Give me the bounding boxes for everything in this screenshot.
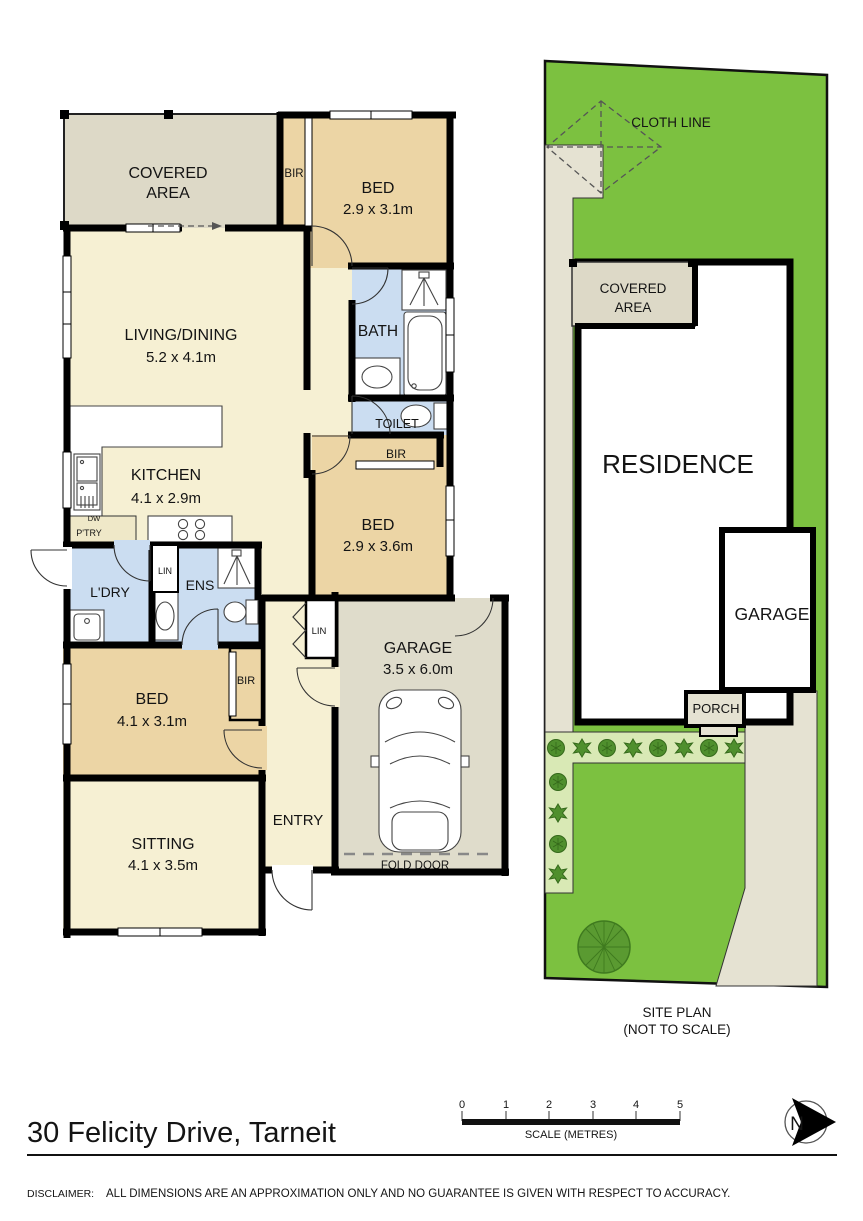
address-title: 30 Felicity Drive, Tarneit (27, 1117, 336, 1149)
entry-door-gap (272, 865, 313, 875)
scale-tick-5: 5 (677, 1099, 683, 1111)
entry-label: ENTRY (273, 812, 324, 829)
bir3-slider (229, 652, 236, 716)
porch-label: PORCH (693, 701, 740, 716)
bed1-alcove-floor (307, 226, 352, 268)
linen1-label: LIN (158, 566, 172, 576)
garage-dims: 3.5 x 6.0m (383, 661, 453, 678)
car-icon (371, 690, 469, 852)
ensuite-label: ENS (186, 577, 215, 593)
footer: 30 Felicity Drive, Tarneit 0 1 2 3 4 5 S… (27, 1098, 837, 1200)
bir-mid-label: BIR (386, 447, 406, 461)
toilet-label: TOILET (375, 417, 419, 431)
scale-tick-4: 4 (633, 1099, 639, 1111)
site-covered-label: COVERED (600, 281, 667, 296)
site-garage-label: GARAGE (735, 604, 810, 624)
toilet-tank (434, 403, 447, 429)
sitting-label: SITTING (131, 836, 194, 853)
dw-label: DW (88, 514, 101, 523)
site-plan: CLOTH LINE COVERED AREA RESIDENCE GARAGE… (545, 61, 827, 1037)
living-dims: 5.2 x 4.1m (146, 349, 216, 366)
bir-top-slider (305, 118, 312, 226)
kitchen-label: KITCHEN (131, 467, 201, 484)
site-caption-1: SITE PLAN (642, 1005, 711, 1020)
covered-area-label2: AREA (146, 185, 190, 202)
bed1-label: BED (362, 180, 395, 197)
site-caption-2: (NOT TO SCALE) (623, 1022, 730, 1037)
floor-plan: COVERED AREA BIR BED 2.9 x 3.1m LIVING/D… (31, 110, 509, 938)
laundry-door-gap (114, 540, 150, 550)
post (164, 110, 173, 119)
plan-canvas: COVERED AREA BIR BED 2.9 x 3.1m LIVING/D… (0, 0, 863, 1221)
residence-label: RESIDENCE (602, 449, 754, 479)
tree-icon (578, 921, 630, 973)
north-label: N (790, 1114, 804, 1135)
garage-label: GARAGE (384, 640, 452, 657)
kitchen-dims: 4.1 x 2.9m (131, 490, 201, 507)
bir-mid-slider (356, 461, 434, 469)
cloth-line-label: CLOTH LINE (631, 115, 711, 130)
scale-tick-0: 0 (459, 1099, 465, 1111)
linen2-label: LIN (312, 626, 327, 637)
laundry-label: L'DRY (90, 584, 130, 600)
fold-door-label: FOLD DOOR (381, 860, 449, 872)
sitting-floor (63, 778, 262, 932)
scale-label: SCALE (METRES) (525, 1129, 617, 1141)
scale-tick-3: 3 (590, 1099, 596, 1111)
bed3-door-gap (257, 726, 267, 770)
bath-vanity (354, 358, 400, 396)
bath-label: BATH (358, 323, 398, 340)
ens-toilet-bowl (224, 602, 246, 622)
post (569, 259, 577, 267)
bathtub (404, 312, 446, 396)
post (688, 259, 696, 267)
scale-bar: 0 1 2 3 4 5 SCALE (METRES) (459, 1099, 683, 1141)
bed3-label: BED (136, 691, 169, 708)
laundry-ext-door-gap (62, 547, 72, 589)
disclaimer-text: ALL DIMENSIONS ARE AN APPROXIMATION ONLY… (106, 1188, 730, 1200)
post (60, 110, 69, 119)
bed2-label: BED (362, 517, 395, 534)
kitchen-sink-unit (74, 454, 100, 510)
covered-area-label: COVERED (128, 165, 207, 182)
site-covered-label2: AREA (615, 300, 652, 315)
ens-door-gap (182, 640, 218, 650)
north-arrow-icon: N (785, 1098, 836, 1146)
floor-plan-page: COVERED AREA BIR BED 2.9 x 3.1m LIVING/D… (0, 0, 863, 1221)
bir-top-label: BIR (284, 168, 303, 180)
bir3-label: BIR (237, 675, 255, 687)
disclaimer-label: DISCLAIMER: (27, 1188, 94, 1200)
bed3-dims: 4.1 x 3.1m (117, 713, 187, 730)
garage-door-gap (330, 667, 340, 707)
bed2-dims: 2.9 x 3.6m (343, 538, 413, 555)
living-label: LIVING/DINING (125, 327, 238, 344)
scale-tick-2: 2 (546, 1099, 552, 1111)
sitting-dims: 4.1 x 3.5m (128, 857, 198, 874)
scale-tick-1: 1 (503, 1099, 509, 1111)
stove (148, 516, 232, 542)
bed1-dims: 2.9 x 3.1m (343, 201, 413, 218)
pantry-label: P'TRY (76, 528, 102, 538)
ens-toilet-tank (246, 600, 258, 624)
site-porch-step (700, 726, 737, 736)
